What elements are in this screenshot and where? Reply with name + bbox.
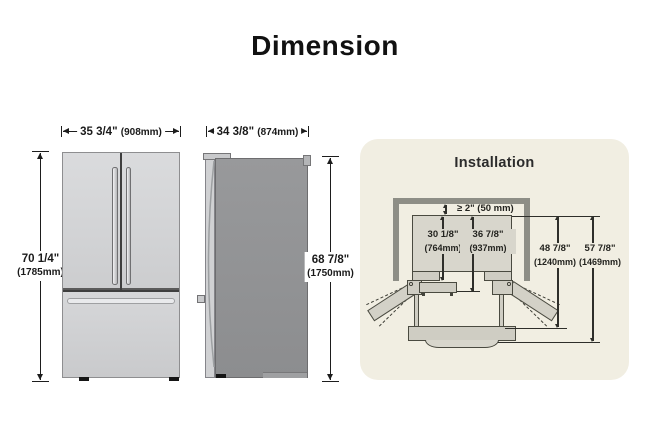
installation-panel: Installation ≥ 2" (50 mm) [360,139,629,380]
arrow-up-icon [327,158,333,164]
dimension-tick [322,381,339,382]
arrow-down-icon [327,374,333,380]
side-hinge-tab [303,155,311,166]
side-foot [216,374,226,378]
arrow-up-icon [443,204,447,208]
arrow-down-icon [37,374,43,380]
arrow-down-icon [443,211,447,215]
label-depth-drawer-open: 48 7/8" (1240mm) [532,243,578,268]
top-view-drawer-front [425,340,499,348]
dim-arrow-1240 [555,216,562,328]
ref-line-drawer [505,328,567,329]
drawer-rail-left [414,294,419,327]
arrow-up-icon [37,153,43,159]
side-cabinet-body [215,158,308,378]
clearance-label: ≥ 2" (50 mm) [457,203,514,214]
side-base-recess [263,372,307,378]
page-title: Dimension [0,30,650,62]
dim-arrow-1469 [590,216,597,342]
clearance-arrow [443,204,450,215]
side-drawer-handle [197,295,205,303]
arrow-down-icon [440,277,444,281]
door-foot-dot [450,293,453,296]
door-foot-dot [422,293,425,296]
front-left-foot [79,377,89,381]
freezer-handle [67,298,175,304]
right-door-handle [126,167,132,285]
label-depth-with-door: 36 7/8" (937mm) [460,229,516,254]
refrigerator-front-view [62,152,180,378]
ref-line-door-front [457,291,480,292]
arrow-up-icon [590,216,594,220]
left-hinge-icon [409,282,413,286]
dimension-tick [180,126,181,137]
dimension-tick [32,381,49,382]
label-depth-door-open: 57 7/8" (1469mm) [577,243,623,268]
arrow-up-icon [470,216,474,220]
front-height-label: 70 1/4" (1785mm) [14,251,67,281]
front-height-dimension: 70 1/4" (1785mm) [32,151,49,382]
left-door-handle [112,167,118,285]
wall-left [393,198,399,281]
ref-line-door-open [498,342,600,343]
side-depth-dimension: 34 3/8" (874mm) [206,123,309,140]
drawer-rail-right [499,294,504,327]
side-height-label: 68 7/8" (1750mm) [304,252,357,282]
arrow-up-icon [440,216,444,220]
dimension-tick [308,126,309,137]
freezer-drawer [63,292,179,377]
front-width-label: 35 3/4" (908mm) [77,126,165,138]
side-height-dimension: 68 7/8" (1750mm) [322,156,339,382]
arrow-right-icon [301,128,307,134]
refrigerator-side-view [203,153,311,378]
arrow-right-icon [173,128,179,134]
installation-title: Installation [360,155,629,171]
dim-arrow-937 [470,216,477,292]
french-doors [63,153,179,290]
wall-right [524,198,530,281]
arrow-up-icon [555,216,559,220]
arrow-left-icon [63,128,69,134]
top-view-closed-door [419,282,457,293]
top-view-open-drawer [408,326,516,341]
front-width-dimension: 35 3/4" (908mm) [61,123,181,140]
right-hinge-icon [507,282,511,286]
side-depth-label: 34 3/8" (874mm) [214,126,302,138]
front-right-foot [169,377,179,381]
